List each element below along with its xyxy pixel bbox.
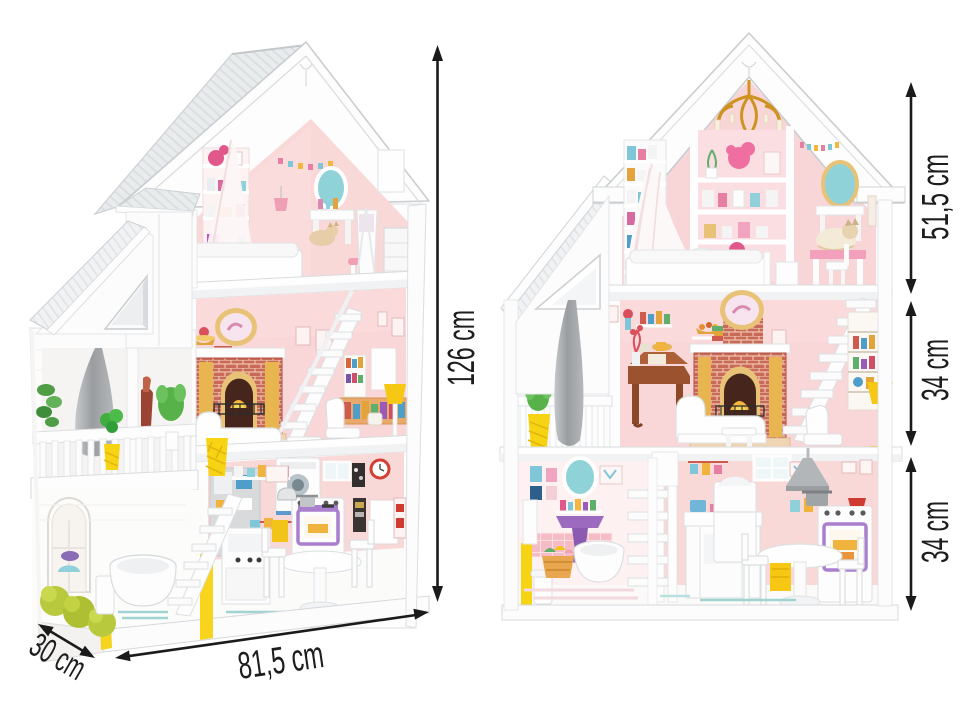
svg-text:34 cm: 34 cm xyxy=(915,339,957,401)
svg-text:126 cm: 126 cm xyxy=(441,310,483,386)
svg-text:51,5 cm: 51,5 cm xyxy=(915,154,957,240)
svg-text:34 cm: 34 cm xyxy=(915,501,957,563)
